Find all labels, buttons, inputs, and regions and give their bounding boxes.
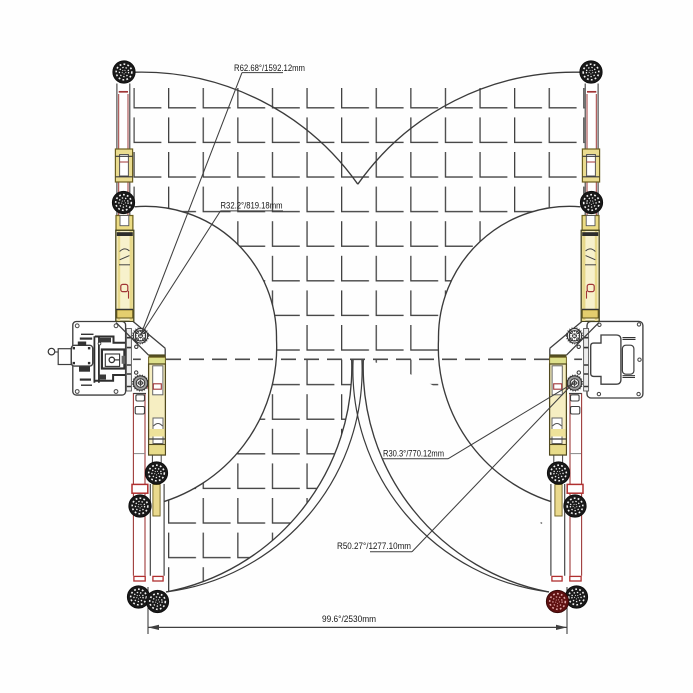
svg-text:99.6°/2530mm: 99.6°/2530mm [322, 613, 376, 624]
svg-text:R30.3°/770.12mm: R30.3°/770.12mm [383, 447, 444, 458]
svg-text:R62.68°/1592.12mm: R62.68°/1592.12mm [234, 62, 305, 73]
svg-text:R32.2°/819.18mm: R32.2°/819.18mm [221, 199, 283, 210]
svg-text:R50.27°/1277.10mm: R50.27°/1277.10mm [337, 540, 411, 551]
